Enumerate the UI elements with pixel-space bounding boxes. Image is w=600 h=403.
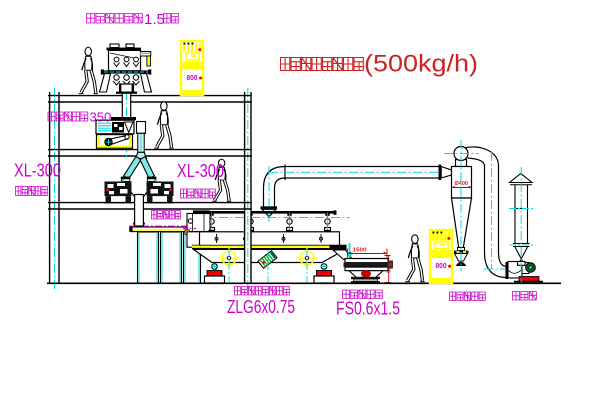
svg-text:FS0.6x1.5: FS0.6x1.5 bbox=[336, 299, 400, 319]
svg-text:350: 350 bbox=[90, 110, 112, 125]
svg-text:(500kg/h): (500kg/h) bbox=[364, 51, 478, 78]
svg-text:1.5: 1.5 bbox=[144, 11, 165, 28]
svg-text:1500: 1500 bbox=[353, 248, 367, 254]
svg-text:XL-300: XL-300 bbox=[177, 161, 224, 181]
svg-text:XL-300: XL-300 bbox=[14, 161, 61, 181]
svg-text:ZLG6x0.75: ZLG6x0.75 bbox=[227, 297, 295, 317]
